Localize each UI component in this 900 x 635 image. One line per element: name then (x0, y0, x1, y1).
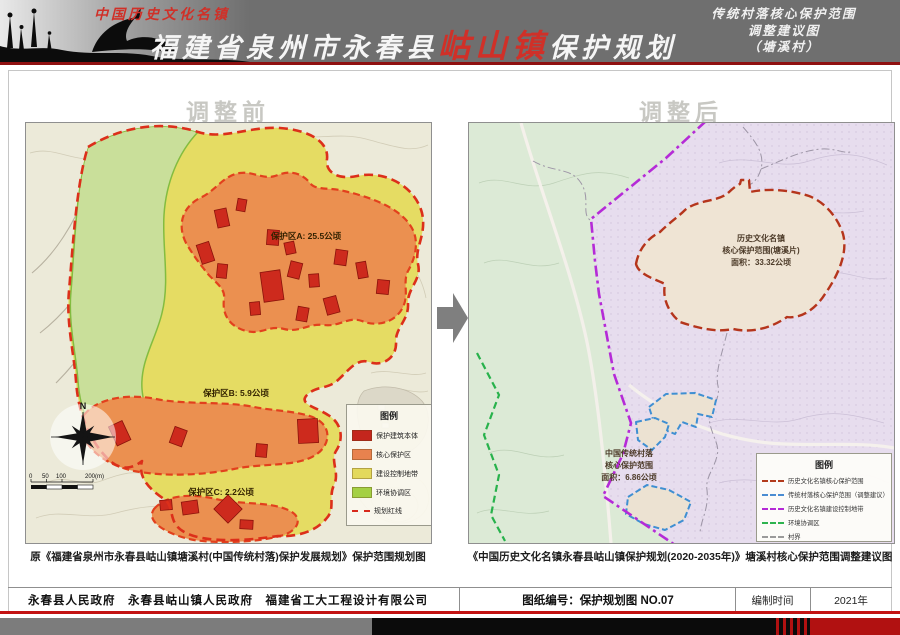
scale-tick-200: 200(m) (85, 474, 104, 480)
legend-after: 图例 历史文化名镇核心保护范围 传统村落核心保护范围（调整建议） 历史文化名镇建… (756, 453, 892, 542)
zone-c-label: 保护区C: 2.2公顷 (187, 487, 254, 497)
panel-title-after: 调整后 (611, 93, 751, 119)
legend-line-village-border (762, 536, 784, 538)
legend-title: 图例 (762, 458, 886, 471)
footer-red-rule (0, 611, 900, 614)
decorative-bar-gray (0, 618, 372, 635)
legend-swatch-protected-building (352, 430, 372, 441)
legend-item: 历史文化名镇核心保护范围 (762, 476, 886, 485)
legend-item: 环境协调区 (762, 518, 886, 527)
legend-line-red-line (352, 510, 370, 512)
scale-bar: 0 50 100 200(m) (29, 474, 104, 489)
village-area-label-line2: 核心保护范围 (605, 460, 653, 470)
legend-item: 历史文化名镇建设控制地带 (762, 504, 886, 513)
decorative-bar-red (810, 618, 900, 635)
header-banner: 中国历史文化名镇 福建省泉州市永春县岵山镇保护规划 传统村落核心保护范围 调整建… (0, 0, 900, 62)
core-area-label-line3: 面积：33.32公顷 (731, 257, 791, 267)
core-area-label-line2: 核心保护范围(塘溪片) (722, 245, 800, 255)
footer-divider (8, 587, 892, 588)
legend-line-control-zone (762, 508, 784, 510)
subtitle-line-3: （塘溪村） (684, 39, 884, 56)
north-label: N (80, 401, 87, 411)
legend-item: 核心保护区 (352, 449, 426, 460)
legend-item: 传统村落核心保护范围（调整建议） (762, 490, 886, 499)
subtitle-line-2: 调整建议图 (684, 23, 884, 40)
scale-tick-50: 50 (42, 474, 49, 480)
legend-swatch-control-zone (352, 468, 372, 479)
subtitle-line-1: 传统村落核心保护范围 (684, 6, 884, 23)
title-prefix: 福建省泉州市永春县 (150, 33, 438, 63)
legend-item: 保护建筑本体 (352, 430, 426, 441)
scale-tick-100: 100 (56, 474, 67, 480)
compile-time-value: 2021年 (811, 593, 891, 608)
map-before: 保护区A: 25.5公顷 保护区B: 5.9公顷 保护区C: 2.2公顷 N (25, 122, 432, 544)
compile-time-label: 编制时间 (736, 593, 809, 608)
legend-line-village-core (762, 494, 784, 496)
sheet-number: 图纸编号：保护规划图 NO.07 (462, 592, 734, 608)
decorative-bar-black (372, 618, 772, 635)
legend-item: 规划红线 (352, 506, 426, 516)
caption-after: 《中国历史文化名镇永春县岵山镇保护规划(2020-2035年)》塘溪村核心保护范… (455, 549, 900, 564)
legend-line-famous-town-core (762, 480, 784, 482)
village-area-label-line3: 面积：6.86公顷 (601, 472, 657, 482)
legend-title: 图例 (352, 409, 426, 422)
legend-before: 图例 保护建筑本体 核心保护区 建设控制地带 环境协调区 规划红线 (346, 404, 432, 526)
sheet-subtitle: 传统村落核心保护范围 调整建议图 （塘溪村） (684, 6, 884, 56)
legend-swatch-core-zone (352, 449, 372, 460)
legend-swatch-env-zone (352, 487, 372, 498)
agencies-text: 永春县人民政府 永春县岵山镇人民政府 福建省工大工程设计有限公司 (28, 592, 428, 608)
arrow-right-icon (437, 292, 469, 344)
caption-before: 原《福建省泉州市永春县岵山镇塘溪村(中国传统村落)保护发展规划》保护范围规划图 (18, 549, 438, 564)
footer-cell-divider (459, 587, 460, 611)
map-after: 历史文化名镇 核心保护范围(塘溪片) 面积：33.32公顷 中国传统村落 核心保… (468, 122, 895, 544)
legend-item: 村界 (762, 532, 886, 541)
decorative-bar-stripes (772, 618, 810, 635)
header-divider (0, 62, 900, 65)
zone-b-label: 保护区B: 5.9公顷 (202, 388, 269, 398)
core-area-label-line1: 历史文化名镇 (737, 233, 785, 243)
village-area-label-line1: 中国传统村落 (605, 448, 654, 458)
page-title: 福建省泉州市永春县岵山镇保护规划 (150, 21, 677, 67)
legend-item: 建设控制地带 (352, 468, 426, 479)
title-highlight: 岵山镇 (438, 28, 549, 64)
legend-line-env-zone (762, 522, 784, 524)
title-suffix: 保护规划 (549, 33, 677, 63)
legend-item: 环境协调区 (352, 487, 426, 498)
zone-a-label: 保护区A: 25.5公顷 (270, 231, 342, 241)
panel-title-before: 调整前 (158, 93, 298, 119)
